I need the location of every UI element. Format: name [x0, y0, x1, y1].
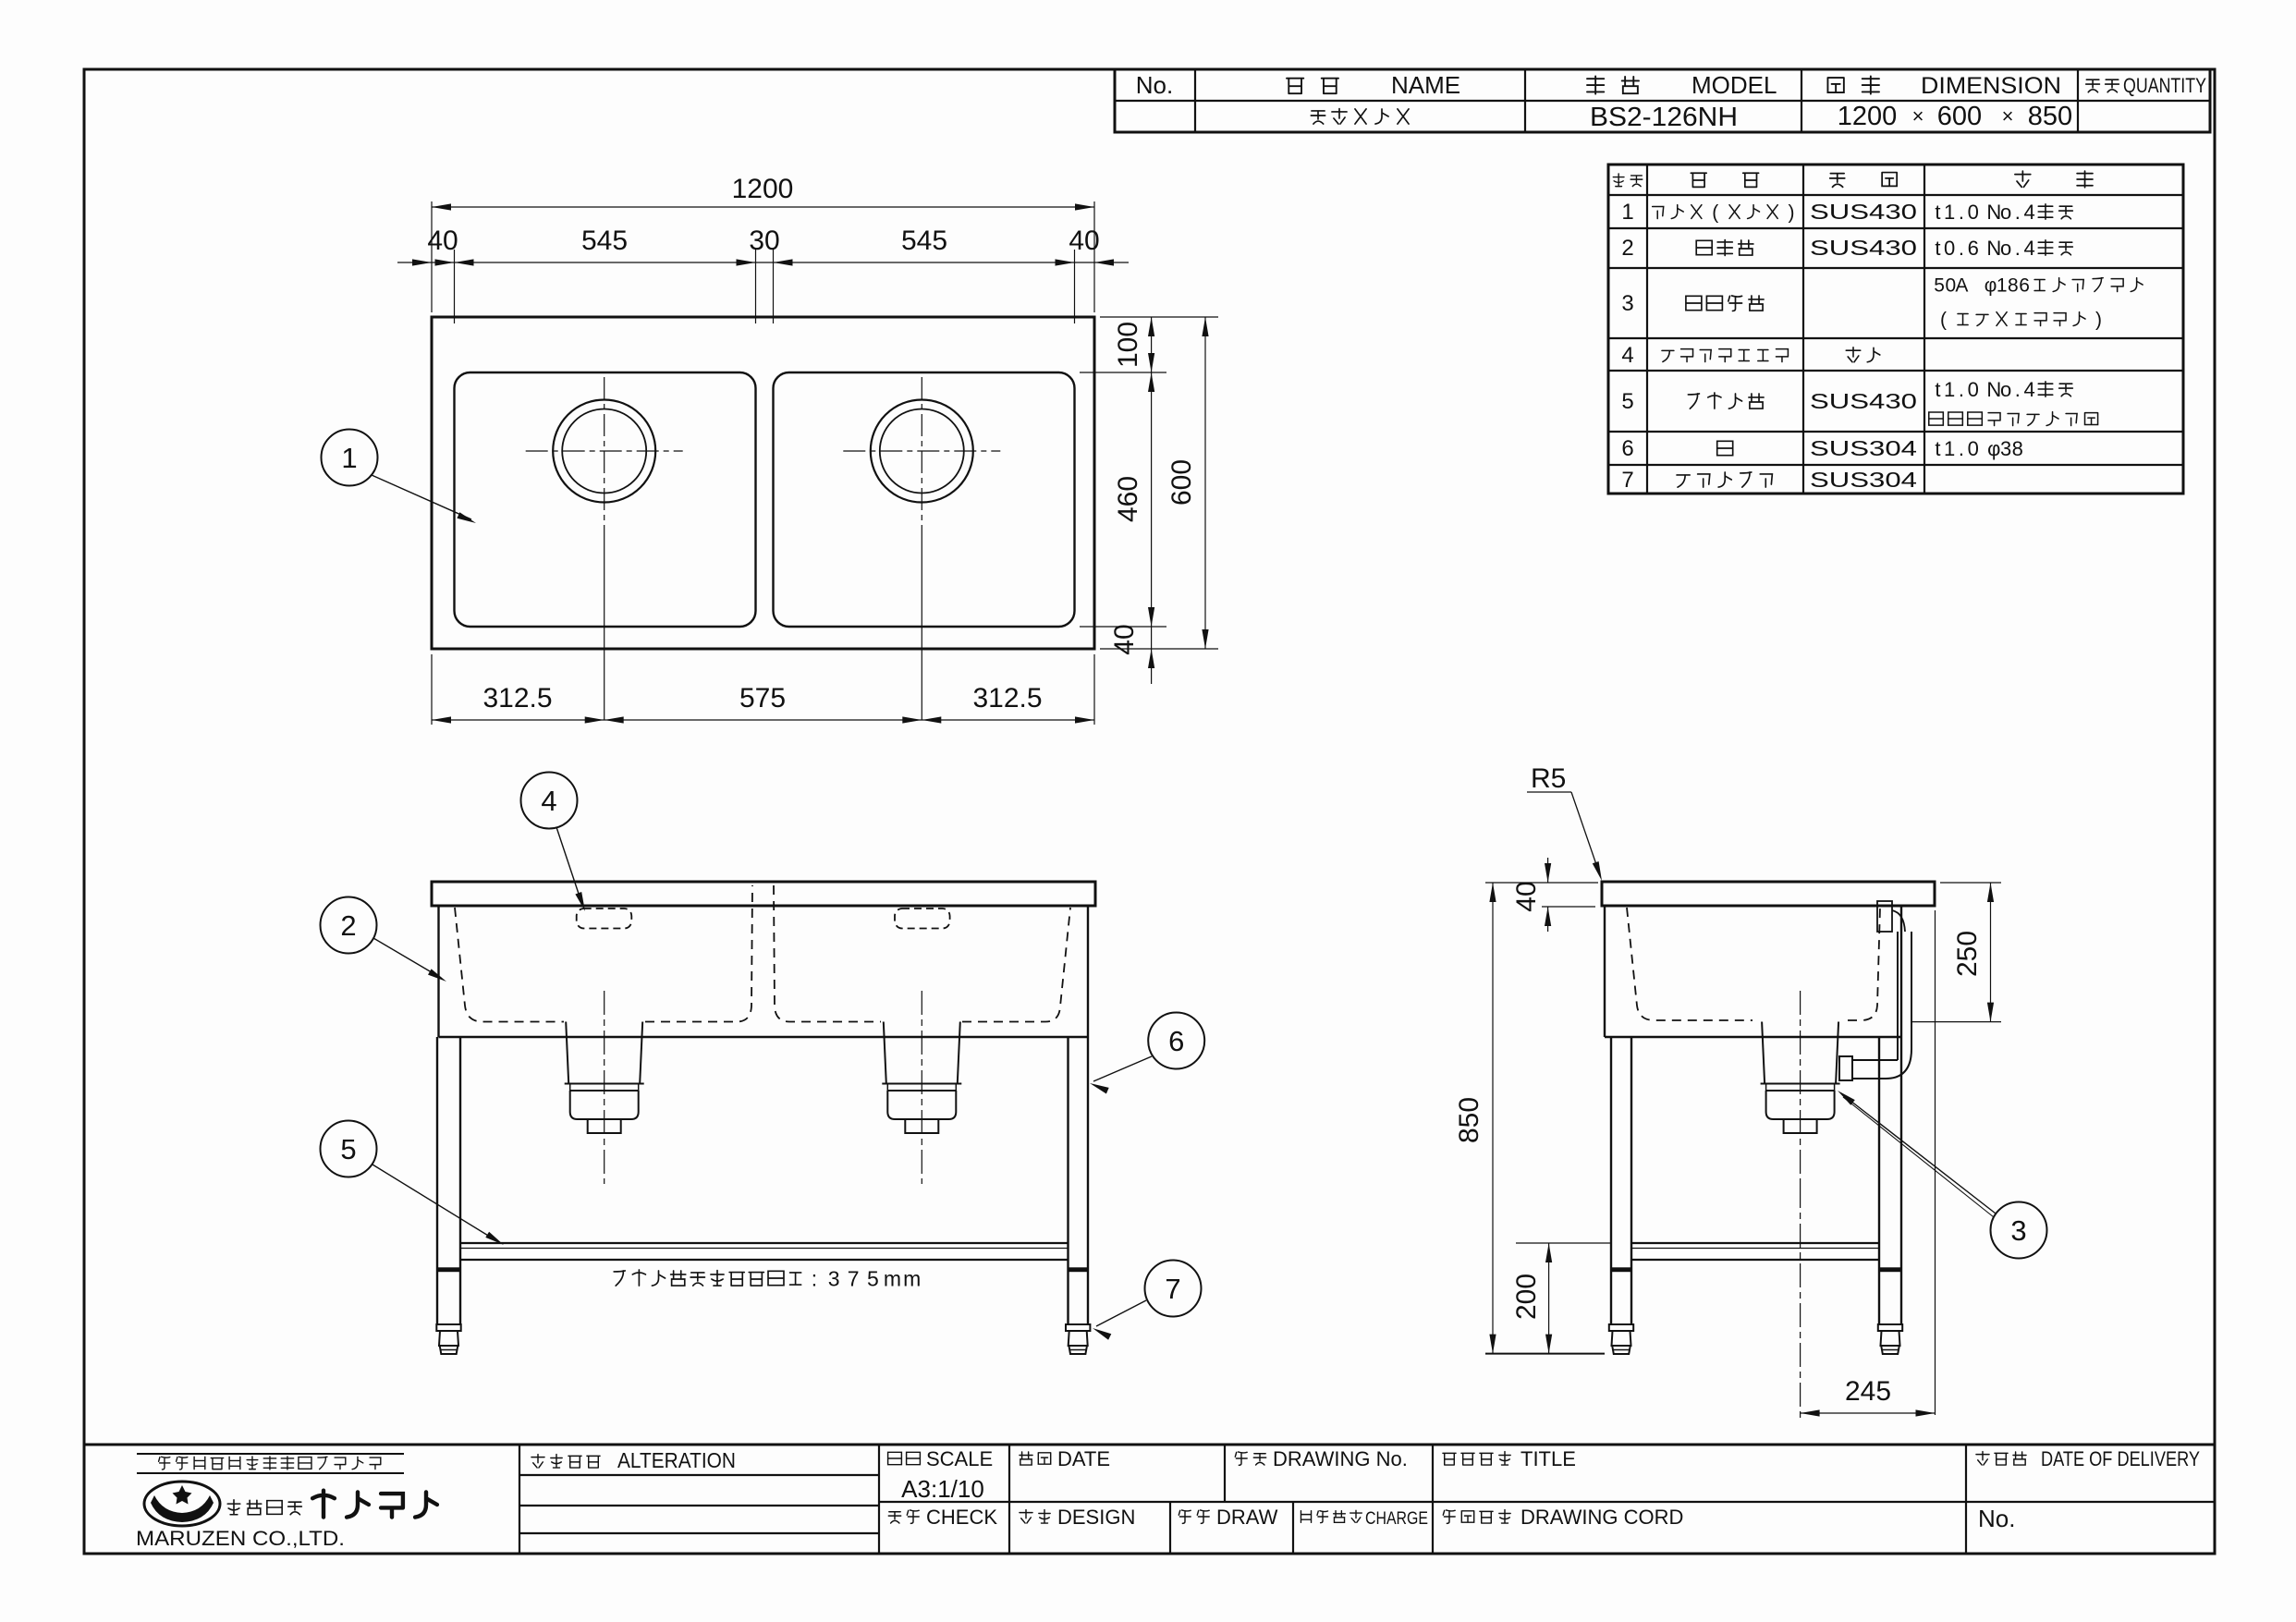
svg-text:DRAWING No.: DRAWING No. [1273, 1447, 1408, 1470]
svg-text:N: N [1986, 378, 2001, 401]
svg-text:545: 545 [581, 226, 628, 256]
svg-text:(: ( [1712, 202, 1718, 224]
svg-text:0: 0 [1944, 237, 1955, 260]
svg-text:SUS430: SUS430 [1810, 389, 1917, 413]
svg-text:0: 0 [1968, 437, 1979, 460]
svg-text:o: o [2000, 201, 2011, 224]
svg-text:N: N [1986, 237, 2001, 260]
svg-text:.: . [1959, 378, 1964, 401]
svg-text:SUS304: SUS304 [1810, 468, 1917, 492]
svg-text:1: 1 [1944, 437, 1955, 460]
svg-text:.: . [1959, 201, 1964, 224]
svg-text:×: × [2002, 104, 2014, 128]
svg-text:1: 1 [1944, 378, 1955, 401]
svg-text:250: 250 [1952, 931, 1983, 977]
svg-text:1: 1 [1944, 201, 1955, 224]
svg-text:o: o [2000, 378, 2011, 401]
svg-text:600: 600 [1166, 459, 1197, 506]
svg-text:DATE OF DELIVERY: DATE OF DELIVERY [2041, 1447, 2200, 1470]
svg-text:1200: 1200 [732, 174, 794, 204]
svg-text:312.5: 312.5 [972, 683, 1042, 713]
svg-text:t: t [1935, 237, 1940, 260]
svg-text:SUS430: SUS430 [1810, 200, 1917, 224]
svg-text:6: 6 [2019, 275, 2030, 297]
svg-text:.: . [2015, 378, 2021, 401]
svg-text:QUANTITY: QUANTITY [2123, 74, 2206, 97]
svg-text:MODEL: MODEL [1691, 71, 1777, 99]
svg-text:4: 4 [2023, 201, 2034, 224]
svg-text:m: m [884, 1266, 901, 1290]
svg-text:40: 40 [1069, 226, 1099, 256]
svg-text:2: 2 [340, 909, 356, 942]
svg-text:DESIGN: DESIGN [1057, 1506, 1135, 1529]
svg-text:1: 1 [1621, 200, 1633, 225]
svg-text:×: × [1912, 104, 1924, 128]
svg-text:6: 6 [1968, 237, 1979, 260]
svg-text:600: 600 [1937, 102, 1982, 131]
svg-text:): ) [1789, 202, 1795, 224]
svg-text:1: 1 [1997, 275, 2008, 297]
svg-text:460: 460 [1113, 476, 1143, 522]
svg-text:.: . [1959, 237, 1964, 260]
svg-text:DATE: DATE [1057, 1447, 1110, 1470]
svg-text:1200: 1200 [1838, 102, 1898, 131]
svg-text:7: 7 [848, 1266, 860, 1290]
svg-text:.: . [2015, 237, 2021, 260]
svg-text:t: t [1935, 437, 1940, 460]
svg-text:312.5: 312.5 [482, 683, 552, 713]
svg-text:0: 0 [1945, 275, 1956, 297]
svg-text:4: 4 [541, 785, 556, 817]
svg-text:.: . [2015, 201, 2021, 224]
svg-text:8: 8 [2008, 275, 2019, 297]
svg-text:245: 245 [1845, 1376, 1891, 1407]
svg-text:CHARGE: CHARGE [1365, 1509, 1428, 1529]
svg-text:SUS430: SUS430 [1810, 236, 1917, 260]
svg-text:A3:1/10: A3:1/10 [901, 1475, 984, 1503]
svg-text:.: . [1959, 437, 1964, 460]
svg-text:4: 4 [2023, 237, 2034, 260]
svg-text:DRAW: DRAW [1216, 1506, 1278, 1529]
svg-text:DIMENSION: DIMENSION [1921, 73, 2061, 99]
svg-text:7: 7 [1621, 468, 1633, 493]
svg-text::: : [812, 1266, 817, 1290]
svg-text:3: 3 [2010, 1214, 2026, 1247]
svg-text:1: 1 [341, 442, 357, 474]
svg-text:100: 100 [1113, 322, 1143, 368]
svg-text:ALTERATION: ALTERATION [617, 1448, 736, 1472]
svg-text:5: 5 [340, 1133, 356, 1165]
svg-text:3: 3 [828, 1266, 840, 1290]
svg-text:0: 0 [1968, 201, 1979, 224]
svg-text:No.: No. [1136, 71, 1173, 99]
svg-text:TITLE: TITLE [1520, 1447, 1576, 1470]
svg-text:2: 2 [1621, 236, 1633, 261]
svg-text:DRAWING CORD: DRAWING CORD [1520, 1506, 1683, 1529]
svg-text:30: 30 [749, 226, 779, 256]
svg-text:5: 5 [867, 1266, 879, 1290]
svg-text:8: 8 [2012, 437, 2023, 460]
svg-text:m: m [903, 1266, 921, 1290]
svg-text:No.: No. [1978, 1505, 2015, 1532]
svg-text:200: 200 [1511, 1274, 1542, 1320]
svg-text:o: o [2000, 237, 2011, 260]
svg-text:t: t [1935, 378, 1940, 401]
svg-text:40: 40 [1511, 881, 1542, 911]
svg-text:4: 4 [2023, 378, 2034, 401]
svg-text:850: 850 [1454, 1097, 1484, 1143]
svg-text:575: 575 [739, 683, 786, 713]
svg-text:6: 6 [1621, 436, 1633, 461]
svg-text:NAME: NAME [1391, 71, 1460, 99]
svg-text:40: 40 [427, 226, 458, 256]
svg-text:SCALE: SCALE [926, 1447, 993, 1470]
svg-text:850: 850 [2028, 102, 2072, 131]
svg-text:3: 3 [2000, 437, 2011, 460]
svg-text:A: A [1955, 275, 1968, 297]
svg-text:φ: φ [1987, 437, 2000, 460]
svg-text:R5: R5 [1531, 763, 1566, 794]
svg-text:BS2-126NH: BS2-126NH [1590, 103, 1738, 132]
svg-text:MARUZEN CO.,LTD.: MARUZEN CO.,LTD. [136, 1527, 345, 1550]
svg-text:7: 7 [1165, 1273, 1180, 1305]
svg-text:): ) [2095, 310, 2102, 331]
svg-text:5: 5 [1621, 389, 1633, 414]
svg-text:4: 4 [1621, 343, 1633, 368]
svg-text:φ: φ [1985, 275, 1997, 297]
svg-text:(: ( [1940, 310, 1947, 331]
svg-text:6: 6 [1168, 1025, 1184, 1057]
svg-text:0: 0 [1968, 378, 1979, 401]
svg-text:SUS304: SUS304 [1810, 436, 1917, 460]
svg-text:CHECK: CHECK [926, 1506, 997, 1529]
svg-text:40: 40 [1109, 624, 1140, 654]
svg-text:t: t [1935, 201, 1940, 224]
svg-text:545: 545 [901, 226, 947, 256]
svg-text:5: 5 [1934, 275, 1945, 297]
svg-text:N: N [1986, 201, 2001, 224]
svg-text:3: 3 [1621, 291, 1633, 316]
